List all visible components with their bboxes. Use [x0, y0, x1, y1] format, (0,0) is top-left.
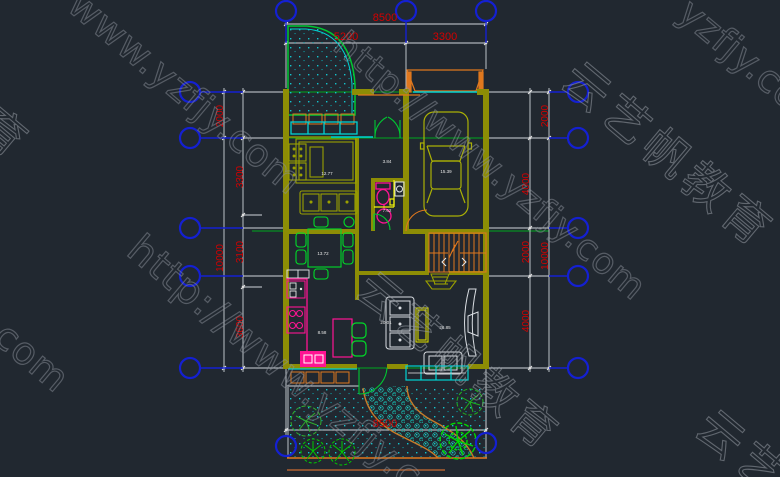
dimension-texts: 8500 5200 3300 8500 2000 10000 3300 3100…	[215, 12, 551, 430]
screen-divider	[465, 289, 477, 356]
label-family: 20.01	[380, 320, 392, 325]
label-lounge: 26.85	[439, 325, 451, 330]
toilet	[376, 183, 390, 205]
dim-left-3600: 3600	[235, 315, 246, 338]
dim-left-3100: 3100	[235, 240, 246, 263]
kitchen-cabinet	[300, 351, 326, 367]
dim-left-10000: 10000	[215, 244, 226, 272]
dim-left-2000: 2000	[215, 104, 226, 127]
label-living: 12.77	[321, 171, 333, 176]
washing-machine	[395, 182, 404, 196]
label-bath: 7.62	[383, 208, 392, 213]
dim-right-2000: 2000	[521, 240, 532, 263]
stove	[287, 307, 305, 333]
tv-console	[426, 281, 456, 289]
dim-top-overall: 8500	[373, 12, 397, 24]
kitchen-sink	[287, 281, 305, 298]
dim-right-4000b: 4000	[521, 309, 532, 332]
dim-left-3300: 3300	[235, 165, 246, 188]
floorplan-drawing: 8500 5200 3300 8500 2000 10000 3300 3100…	[0, 0, 780, 477]
garage-canopy	[407, 70, 483, 92]
living-room-furniture	[289, 139, 357, 214]
garden-deck	[287, 369, 359, 386]
dim-right-10000: 10000	[540, 242, 551, 270]
axis-bubble-lines	[200, 20, 568, 368]
dim-right-4000a: 4000	[521, 172, 532, 195]
cad-floorplan-canvas: 8500 5200 3300 8500 2000 10000 3300 3100…	[0, 0, 780, 477]
stairs	[429, 233, 486, 272]
coffee-table	[416, 308, 428, 342]
dim-top-seg2: 3300	[433, 31, 457, 43]
stair-hall-door	[406, 210, 427, 231]
stair-landing-step	[431, 274, 449, 284]
entry-double-door	[375, 117, 400, 138]
car	[421, 112, 472, 216]
room-labels: 12.77 3.84 7.62 15.39 13.72 8.58 20.01 2…	[317, 159, 452, 335]
label-hall: 3.84	[383, 159, 392, 164]
label-dining: 13.72	[317, 251, 329, 256]
label-garage: 15.39	[440, 169, 452, 174]
kitchen	[286, 270, 366, 367]
dim-top-seg1: 5200	[334, 31, 358, 43]
dim-right-2000-top: 2000	[540, 104, 551, 127]
breakfast-bar	[333, 319, 366, 357]
dim-bottom-overall: 8500	[373, 418, 397, 430]
label-kitchen: 8.58	[318, 330, 327, 335]
family-room-furniture	[386, 289, 478, 374]
bathroom	[374, 180, 404, 230]
